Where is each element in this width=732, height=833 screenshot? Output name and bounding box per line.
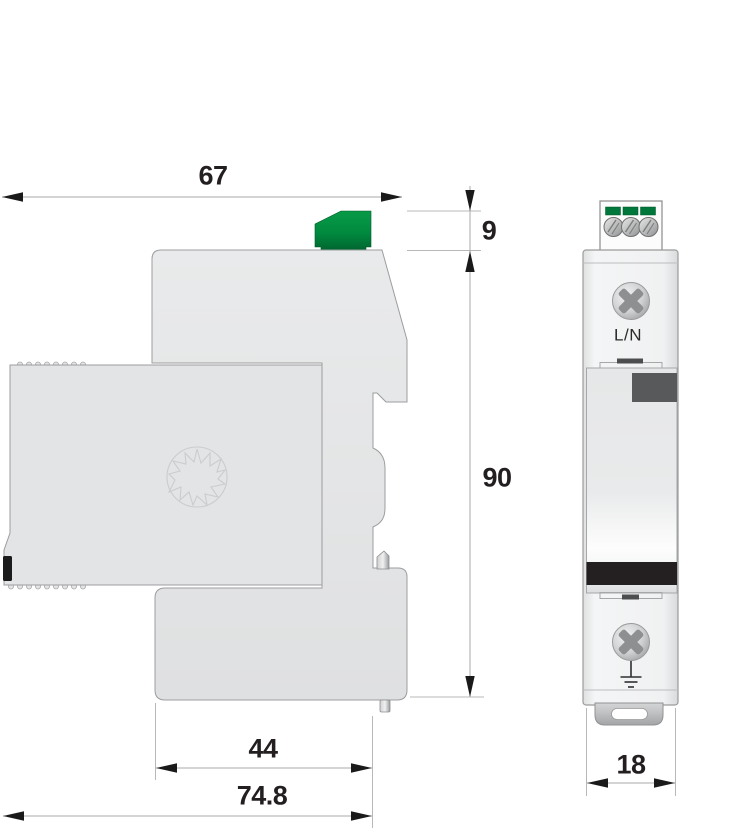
status-indicator-window	[632, 373, 677, 402]
dim-label-body-height: 90	[482, 465, 511, 492]
bottom-pin	[380, 700, 390, 712]
green-connector	[315, 211, 371, 251]
module-bottom-tab	[622, 595, 639, 600]
dim-label-connector-height: 9	[482, 218, 497, 245]
dimension-drawing: 67 9 90 44 74.8 18 L/N	[0, 0, 732, 833]
dim-label-overall-depth-bottom: 74.8	[237, 783, 288, 810]
module-catch-tab	[617, 359, 643, 364]
dim-label-overall-depth-top: 67	[198, 163, 227, 190]
release-latch	[3, 556, 12, 581]
mounting-screw-tip	[377, 551, 389, 569]
side-view	[3, 211, 407, 712]
din-foot-slot	[612, 709, 648, 720]
terminal-screw-icon	[622, 218, 641, 237]
dim-label-module-width: 18	[616, 752, 645, 779]
terminal-screw-icon	[639, 218, 658, 237]
terminal-screws	[604, 218, 658, 237]
front-view	[583, 201, 678, 725]
terminal-designation-label: L/N	[614, 327, 642, 344]
dim-9	[407, 186, 481, 697]
dim-90	[410, 676, 484, 697]
drawing-canvas	[0, 0, 732, 833]
dim-74-8	[3, 811, 372, 820]
dim-67	[2, 192, 402, 201]
plug-in-module	[4, 365, 322, 585]
terminal-screw-icon	[604, 218, 623, 237]
terminal-green-contacts	[606, 207, 656, 215]
status-bar	[587, 562, 678, 585]
dim-label-base-depth: 44	[248, 736, 277, 763]
